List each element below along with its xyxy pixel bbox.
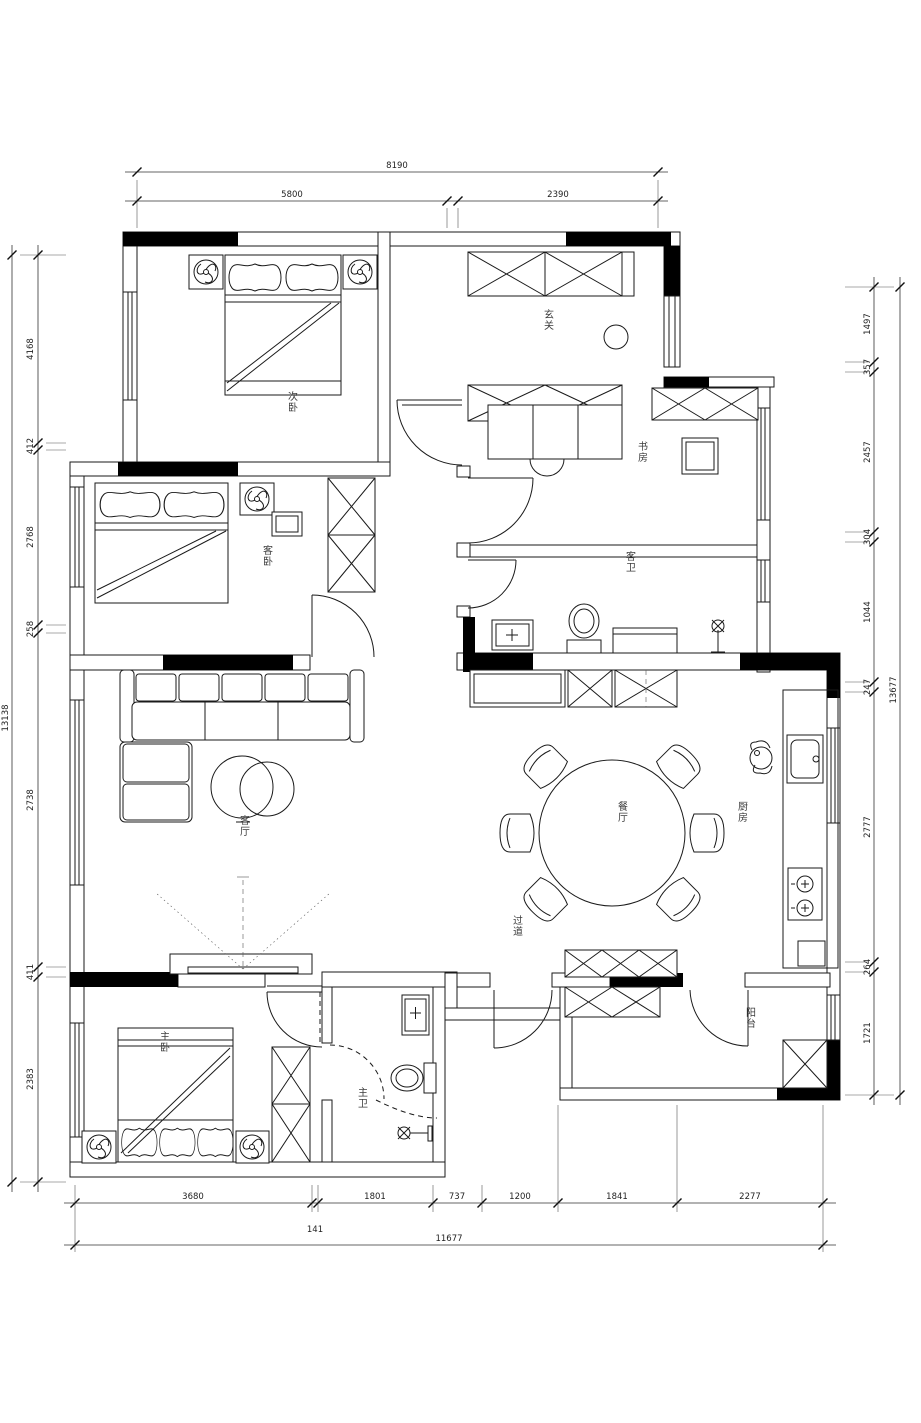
label-hallway: 过道 <box>511 914 523 937</box>
wardrobe <box>272 1047 310 1162</box>
dim-left-seg-5: 2738 <box>26 789 36 811</box>
bed <box>225 255 341 395</box>
dimensions-top: 8190 5800 2390 <box>125 161 668 206</box>
dimensions-bottom: 3680 141 1801 737 1200 1841 2277 11677 <box>64 1192 836 1250</box>
label-bedroom1: 次卧 <box>286 390 298 413</box>
nightstand <box>82 1131 116 1163</box>
dim-bottom-seg-5: 1200 <box>509 1192 531 1202</box>
furniture-balcony <box>565 950 827 1088</box>
bed <box>118 1028 233 1162</box>
label-master-bath: 主卫 <box>356 1087 368 1109</box>
toilet <box>567 604 601 653</box>
door-balcony <box>690 990 748 1046</box>
dim-bottom-total: 11677 <box>435 1234 462 1244</box>
dim-left-seg-3: 2768 <box>26 526 36 548</box>
dining-table <box>500 740 724 925</box>
dim-top-seg-2: 2390 <box>547 190 569 200</box>
plant <box>711 620 725 652</box>
shower <box>376 1100 437 1141</box>
dim-left-seg-7: 2383 <box>26 1068 36 1090</box>
kitchen-sink <box>787 735 823 783</box>
furniture-kitchen <box>750 690 838 968</box>
dim-top-seg-1: 5800 <box>281 190 303 200</box>
bath-cabinet <box>613 628 677 653</box>
furniture-master-bath <box>376 995 437 1141</box>
storage-cabinet <box>565 950 677 977</box>
dim-left-total: 13138 <box>1 704 11 731</box>
floor-plan-canvas: 8190 5800 2390 3680 141 1801 737 1200 18… <box>0 0 921 1423</box>
furniture-dining <box>470 670 724 926</box>
decor-figure <box>750 741 772 774</box>
nightstand <box>343 255 377 289</box>
furniture-guest-bath <box>492 604 725 653</box>
study-top-cabinet <box>652 388 758 420</box>
entry-wardrobe <box>468 252 634 296</box>
dim-left-seg-1: 4168 <box>26 338 36 360</box>
window-living-west <box>70 700 84 885</box>
dimensions-right: 1497 357 2457 304 1044 247 2777 264 1721… <box>863 277 905 1105</box>
nightstand <box>240 483 274 515</box>
shoe-cabinet <box>470 670 565 707</box>
dim-bottom-seg-3: 1801 <box>364 1192 386 1202</box>
dim-right-seg-4: 304 <box>863 529 873 545</box>
nightstand <box>189 255 223 289</box>
dim-right-seg-2: 357 <box>863 359 873 375</box>
stove <box>788 868 822 920</box>
label-living: 客厅 <box>238 814 250 837</box>
dim-right-seg-6: 247 <box>863 679 873 695</box>
coffee-table <box>211 756 294 822</box>
desk-chair <box>530 459 564 476</box>
window-bedroom2-west <box>70 487 84 587</box>
door-bedroom2 <box>312 595 374 657</box>
dim-right-total: 13677 <box>889 676 899 703</box>
label-balcony: 阳台 <box>744 1007 756 1029</box>
desk <box>488 405 622 459</box>
dim-bottom-seg-7: 2277 <box>739 1192 761 1202</box>
nightstand <box>236 1131 269 1163</box>
label-guest-bath: 客卫 <box>624 550 636 573</box>
furniture-bedroom2 <box>95 478 375 603</box>
washbasin <box>492 620 533 650</box>
door-guest-bath <box>468 560 516 608</box>
window-entry-east <box>664 296 680 367</box>
label-dining: 餐厅 <box>616 800 628 823</box>
dim-right-seg-5: 1044 <box>863 601 873 623</box>
window-balcony-east <box>827 995 840 1040</box>
corner-cabinet <box>783 1040 827 1088</box>
kitchen-base-cabinet <box>798 941 825 966</box>
toilet <box>391 1063 436 1093</box>
door-hall-entry <box>397 400 462 465</box>
dim-right-seg-8: 264 <box>863 959 873 975</box>
window-study-east <box>757 408 770 520</box>
dim-right-seg-9: 1721 <box>863 1022 873 1044</box>
dim-right-seg-3: 2457 <box>863 441 873 463</box>
label-study: 书房 <box>636 441 648 463</box>
side-table <box>682 438 718 474</box>
dim-bottom-seg-1: 3680 <box>182 1192 204 1202</box>
floor-plan-page: 8190 5800 2390 3680 141 1801 737 1200 18… <box>0 0 921 1423</box>
door-study <box>468 478 533 543</box>
furniture-bedroom1 <box>189 255 377 395</box>
storage-cabinet <box>565 987 660 1017</box>
window-bedroom1-west <box>123 292 137 400</box>
dim-left-seg-6: 411 <box>26 964 36 980</box>
dining-cabinet <box>568 670 677 707</box>
label-master-bedroom: 主卧 <box>158 1031 170 1053</box>
tv-cabinet <box>156 877 330 974</box>
small-table <box>272 512 302 536</box>
bed <box>95 483 228 603</box>
entry-stool <box>604 325 628 349</box>
window-bath-east <box>757 560 770 602</box>
dim-bottom-seg-2: 141 <box>307 1225 323 1235</box>
dim-right-seg-1: 1497 <box>863 313 873 335</box>
dim-left-seg-4: 258 <box>26 621 36 637</box>
dim-top-total: 8190 <box>386 161 408 171</box>
furniture-entry <box>468 252 758 421</box>
label-kitchen: 厨房 <box>736 801 748 823</box>
dimensions-left: 4168 412 2768 258 2738 411 2383 13138 <box>1 245 43 1192</box>
dim-bottom-seg-6: 1841 <box>606 1192 628 1202</box>
label-bedroom2: 客卧 <box>261 544 273 567</box>
dim-right-seg-7: 2777 <box>863 816 873 838</box>
wardrobe <box>328 478 375 592</box>
dim-left-seg-2: 412 <box>26 438 36 454</box>
door-master-bedroom <box>267 986 322 1047</box>
window-master-west <box>70 1023 84 1137</box>
washbasin <box>402 995 429 1035</box>
furniture-master-bedroom <box>82 1028 310 1163</box>
label-entry: 玄关 <box>542 308 554 331</box>
dim-bottom-seg-4: 737 <box>449 1192 465 1202</box>
